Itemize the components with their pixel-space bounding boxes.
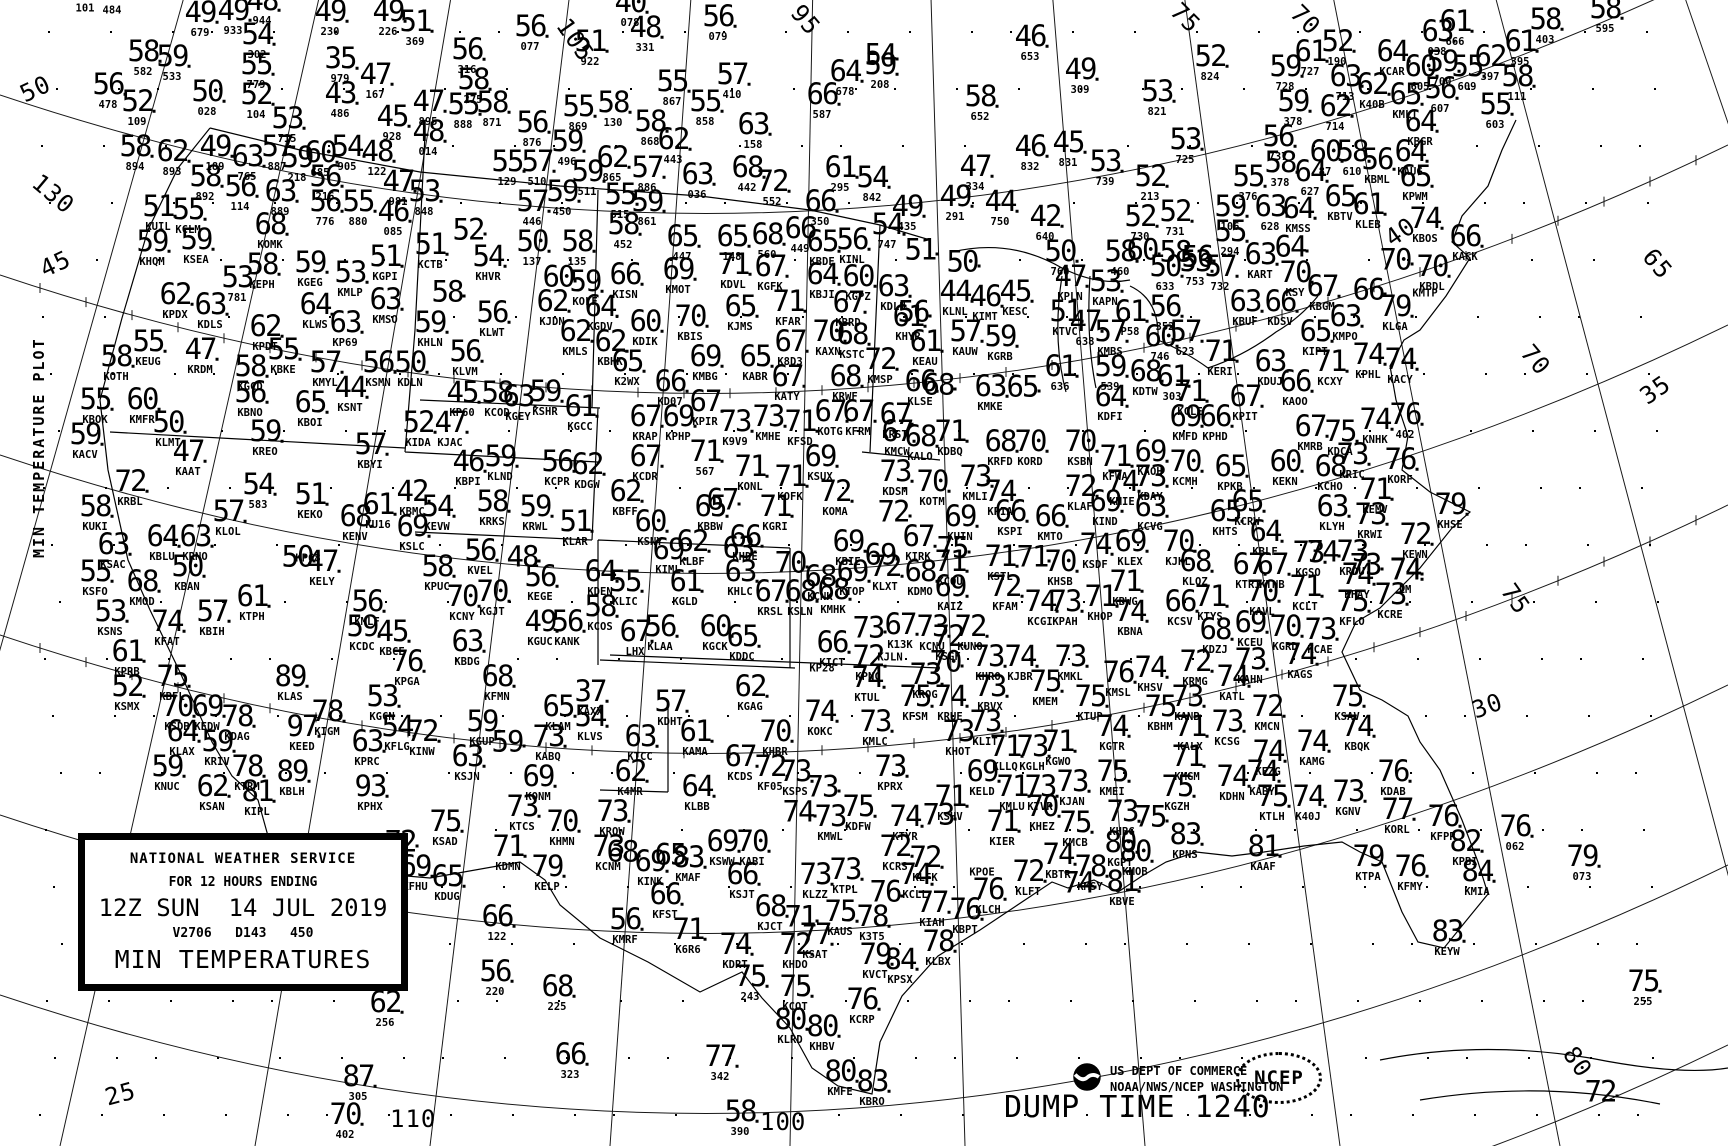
station-dot-icon <box>1323 805 1326 808</box>
graticule-dot <box>512 1114 514 1116</box>
graticule-dot <box>1426 886 1428 888</box>
station-temp: 73 <box>1333 777 1364 806</box>
station-temp: 81 <box>1107 867 1138 896</box>
station-id: KPIT <box>1230 412 1261 423</box>
station-temp: 70 <box>775 549 806 578</box>
station-dot-icon <box>787 190 790 193</box>
station-plot: 59KSHR <box>530 377 561 418</box>
station-dot-icon <box>400 1011 403 1014</box>
station-id: 078 <box>615 18 646 29</box>
station-dot-icon <box>1192 795 1195 798</box>
graticule-dot <box>104 316 106 318</box>
station-dot-icon <box>685 390 688 393</box>
station-dot-icon <box>1310 390 1313 393</box>
station-plot: 56KBNO <box>235 378 266 419</box>
station-temp: 79 <box>532 852 563 881</box>
graticule-dot <box>1181 88 1183 90</box>
commerce-dept-line: US DEPT OF COMMERCE <box>1110 1064 1247 1078</box>
station-temp: 60 <box>1270 447 1301 476</box>
station-id: KPNS <box>1170 850 1201 861</box>
station-id: KBTV <box>1325 212 1356 223</box>
station-dot-icon <box>227 620 230 623</box>
station-temp: 58 <box>1265 148 1296 177</box>
station-plot: 63KMSO <box>370 285 401 326</box>
station-dot-icon <box>515 465 518 468</box>
station-dot-icon <box>555 585 558 588</box>
graticule-dot <box>1648 373 1650 375</box>
station-id: KEUG <box>133 357 164 368</box>
station-temp: 72 <box>757 167 788 196</box>
station-dot-icon <box>547 250 550 253</box>
station-dot-icon <box>563 745 566 748</box>
station-dot-icon <box>385 453 388 456</box>
station-temp: 70 <box>1065 427 1096 456</box>
station-temp: 63 <box>1255 192 1286 221</box>
station-plot: 62KPDX <box>160 280 191 321</box>
station-plot: 73KPAH <box>1050 587 1081 628</box>
station-dot-icon <box>1447 275 1450 278</box>
station-plot: 51KCTB <box>415 230 446 271</box>
station-dot-icon <box>887 925 890 928</box>
station-dot-icon <box>560 400 563 403</box>
station-plot: 71 <box>1017 543 1048 572</box>
station-plot: 79KHSE <box>1435 490 1466 531</box>
station-id: 256 <box>370 1018 401 1029</box>
station-plot: 63KGEY <box>503 382 534 423</box>
station-dot-icon <box>1060 690 1063 693</box>
station-temp: 66 <box>995 497 1026 526</box>
graticule-dot <box>1372 943 1374 945</box>
graticule-dot <box>1656 430 1658 432</box>
graticule-dot <box>673 772 675 774</box>
station-dot-icon <box>125 620 128 623</box>
station-dot-icon <box>910 480 913 483</box>
graticule-dot <box>228 316 230 318</box>
station-id: KBQK <box>1342 742 1373 753</box>
graticule-dot <box>157 88 159 90</box>
station-temp: 59 <box>152 752 183 781</box>
graticule-dot <box>1415 316 1417 318</box>
graticule-dot <box>1472 772 1474 774</box>
station-temp: 69 <box>523 762 554 791</box>
station-plot: 65KDUG <box>432 862 463 903</box>
station-id: KGCC <box>565 422 596 433</box>
station-temp: 59 <box>520 492 551 521</box>
station-id: KBOI <box>295 418 326 429</box>
station-id: KSPI <box>995 527 1026 538</box>
station-id: KELD <box>967 787 998 798</box>
station-dot-icon <box>187 65 190 68</box>
station-temp: 71 <box>775 462 806 491</box>
station-id: KANK <box>552 637 583 648</box>
station-dot-icon <box>1075 375 1078 378</box>
station-dot-icon <box>110 515 113 518</box>
station-id: 450 <box>547 207 578 218</box>
station-temp: 79 <box>1435 490 1466 519</box>
graticule-dot <box>499 202 501 204</box>
graticule-dot <box>1538 145 1540 147</box>
station-plot: 61KAMA <box>680 717 711 758</box>
station-id: KCDS <box>725 772 756 783</box>
station-id: KOTG <box>815 427 846 438</box>
station-dot-icon <box>1420 423 1423 426</box>
graticule-dot <box>1535 943 1537 945</box>
station-temp: 76 <box>392 647 423 676</box>
station-dot-icon <box>110 580 113 583</box>
station-id: 390 <box>725 1127 756 1138</box>
station-dot-icon <box>768 133 771 136</box>
station-dot-icon <box>1165 515 1168 518</box>
graticule-dot <box>153 715 155 717</box>
station-plot: 70KSBN <box>1065 427 1096 468</box>
station-id: 871 <box>477 118 508 129</box>
station-id: KDSV <box>1265 317 1296 328</box>
station-id: KNUC <box>152 782 183 793</box>
station-plot: 72 <box>1585 1078 1616 1107</box>
station-temp: 73 <box>1355 500 1386 529</box>
station-temp: 55 <box>492 147 523 176</box>
station-dot-icon <box>1200 340 1203 343</box>
station-plot: 73KTPL <box>830 855 861 896</box>
station-temp: 56 <box>703 2 734 31</box>
station-plot: 83KPNS <box>1170 820 1201 861</box>
station-dot-icon <box>1492 880 1495 883</box>
station-temp: 40 <box>615 0 646 17</box>
station-dot-icon <box>790 740 793 743</box>
graticule-dot <box>385 601 387 603</box>
station-temp: 67 <box>843 397 874 426</box>
station-plot: 54747 <box>872 210 903 251</box>
station-dot-icon <box>1110 553 1113 556</box>
station-plot: 73KCNM <box>593 832 624 873</box>
station-plot: 67KPIR <box>690 387 721 428</box>
station-dot-icon <box>980 340 983 343</box>
station-plot: 57446 <box>517 187 548 228</box>
graticule-dot <box>1310 943 1312 945</box>
station-temp: 45 <box>1000 277 1031 306</box>
station-dot-icon <box>803 310 806 313</box>
graticule-dot <box>1355 658 1357 660</box>
graticule-dot <box>837 943 839 945</box>
station-temp: 72 <box>780 930 811 959</box>
station-id: KCOS <box>585 622 616 633</box>
station-plot: 73KMHE <box>753 402 784 443</box>
station-plot: 63628 <box>1255 192 1286 233</box>
station-plot: 59KSEA <box>181 225 212 266</box>
station-plot: 65KDDC <box>727 622 758 663</box>
station-dot-icon <box>1202 765 1205 768</box>
station-dot-icon <box>1120 290 1123 293</box>
station-temp: 50 <box>1150 252 1181 281</box>
station-plot: 61KGLD <box>670 567 701 608</box>
station-plot: 58KOTH <box>101 342 132 383</box>
station-id: KLYH <box>1317 522 1348 533</box>
station-plot: 74KFAT <box>152 607 183 648</box>
station-plot: 70402 <box>330 1100 361 1141</box>
station-temp: 71 <box>1172 742 1203 771</box>
station-temp: 66 <box>1450 222 1481 251</box>
station-id: KBRO <box>857 1097 888 1108</box>
graticule-dot <box>1584 31 1586 33</box>
station-temp: 56 <box>525 562 556 591</box>
station-dot-icon <box>638 233 641 236</box>
graticule-dot <box>685 202 687 204</box>
station-plot: 50137 <box>517 227 548 268</box>
station-temp: 74 <box>1080 530 1111 559</box>
station-id: KPHL <box>1353 370 1384 381</box>
graticule-dot <box>386 772 388 774</box>
graticule-dot <box>630 88 632 90</box>
station-plot: 51369 <box>400 7 431 48</box>
station-plot: 79KELP <box>532 852 563 893</box>
station-id: 225 <box>542 1002 573 1013</box>
graticule-dot <box>1474 1114 1476 1116</box>
station-plot: 70KCMH <box>1170 447 1201 488</box>
station-dot-icon <box>1277 600 1280 603</box>
station-dot-icon <box>265 401 268 404</box>
station-temp: 51 <box>415 230 446 259</box>
graticule-dot <box>1427 1057 1429 1059</box>
station-plot: 68KOMK <box>255 210 286 251</box>
graticule-dot <box>1144 430 1146 432</box>
station-plot: 74KHSV <box>1135 653 1166 694</box>
station-dot-icon <box>1145 620 1148 623</box>
station-temp: 67 <box>755 577 786 606</box>
station-id: KENV <box>340 532 371 543</box>
station-id: KRSL <box>755 607 786 618</box>
station-temp: 72 <box>933 622 964 651</box>
station-id: KSEA <box>181 255 212 266</box>
station-temp: 50 <box>153 408 184 437</box>
station-plot: 56077 <box>515 12 546 53</box>
graticule-dot <box>626 715 628 717</box>
station-temp: 71 <box>1290 572 1321 601</box>
station-temp: 59 <box>492 728 523 757</box>
station-plot: 47KAAT <box>173 437 204 478</box>
graticule-dot <box>1179 1057 1181 1059</box>
grid-label: 110 <box>390 1105 436 1133</box>
station-id: KMBG <box>690 372 721 383</box>
graticule-dot <box>1023 943 1025 945</box>
station-dot-icon <box>131 365 134 368</box>
station-dot-icon <box>272 800 275 803</box>
station-plot: 52109 <box>122 87 153 128</box>
station-dot-icon <box>1100 330 1103 333</box>
graticule-dot <box>1072 31 1074 33</box>
station-id: 776 <box>310 217 341 228</box>
station-dot-icon <box>522 170 525 173</box>
graticule-dot <box>838 1114 840 1116</box>
station-id: KABR <box>740 372 771 383</box>
station-dot-icon <box>873 420 876 423</box>
graticule-dot <box>686 373 688 375</box>
station-temp: 89 <box>277 757 308 786</box>
graticule-dot <box>1311 1114 1313 1116</box>
graticule-dot <box>907 1000 909 1002</box>
station-id: 633 <box>1150 282 1181 293</box>
station-temp: 67 <box>885 610 916 639</box>
graticule-dot <box>956 88 958 90</box>
station-plot: 73KPRX <box>875 752 906 793</box>
station-plot: 63KBDG <box>452 627 483 668</box>
station-temp: 64 <box>1095 382 1126 411</box>
station-temp: 71 <box>1175 712 1206 741</box>
station-temp: 55 <box>1233 162 1264 191</box>
station-temp: 67 <box>630 442 661 471</box>
graticule-dot <box>438 373 440 375</box>
station-temp: 75 <box>1097 757 1128 786</box>
graticule-dot <box>338 544 340 546</box>
station-plot: 48944 <box>247 0 278 26</box>
station-temp: 65 <box>1215 452 1246 481</box>
graticule-dot <box>504 1057 506 1059</box>
station-id: KDDC <box>727 652 758 663</box>
station-plot: 56KLVM <box>450 337 481 378</box>
station-plot: 49230 <box>315 0 346 37</box>
graticule-dot <box>794 259 796 261</box>
station-temp: 63 <box>180 522 211 551</box>
station-temp: 68 <box>837 320 868 349</box>
station-temp: 74 <box>783 798 814 827</box>
graticule-dot <box>1248 943 1250 945</box>
station-temp: 51 <box>905 236 936 265</box>
station-dot-icon <box>507 111 510 114</box>
station-id: KDFI <box>1095 412 1126 423</box>
graticule-dot <box>905 658 907 660</box>
graticule-dot <box>1238 544 1240 546</box>
station-temp: 77 <box>1382 795 1413 824</box>
station-dot-icon <box>873 815 876 818</box>
graticule-dot <box>453 316 455 318</box>
station-dot-icon <box>295 200 298 203</box>
station-id: KFSM <box>900 712 931 723</box>
station-temp: 48 <box>413 117 444 146</box>
station-id: KGEY <box>503 412 534 423</box>
station-id: KRDM <box>185 365 216 376</box>
station-temp: 55 <box>563 92 594 121</box>
station-temp: 51 <box>295 480 326 509</box>
station-plot: 59KRIV <box>202 727 233 768</box>
station-plot: 55KBKE <box>268 335 299 376</box>
station-dot-icon <box>645 780 648 783</box>
station-temp: 72 <box>1013 857 1044 886</box>
station-plot: 70 <box>775 549 806 578</box>
graticule-dot <box>101 1114 103 1116</box>
station-temp: 69 <box>837 557 868 586</box>
station-dot-icon <box>1242 730 1245 733</box>
station-plot: 76KMSL <box>1103 658 1134 699</box>
station-plot: 64KDFI <box>1095 382 1126 423</box>
graticule-dot <box>440 715 442 717</box>
station-dot-icon <box>960 664 963 667</box>
station-dot-icon <box>980 918 983 921</box>
graticule-dot <box>279 1057 281 1059</box>
station-temp: 47 <box>185 335 216 364</box>
station-temp: 74 <box>1410 204 1441 233</box>
station-dot-icon <box>680 903 683 906</box>
station-plot: 71K6R6 <box>673 915 704 956</box>
station-plot: 61KEAU <box>910 327 941 368</box>
station-dot-icon <box>1020 595 1023 598</box>
station-dot-icon <box>837 103 840 106</box>
station-id: KLOL <box>213 527 244 538</box>
graticule-dot <box>172 31 174 33</box>
graticule-dot <box>1134 31 1136 33</box>
station-dot-icon <box>767 850 770 853</box>
station-dot-icon <box>835 465 838 468</box>
graticule-dot <box>1592 88 1594 90</box>
station-temp: 50 <box>947 248 978 277</box>
station-dot-icon <box>970 300 973 303</box>
station-plot: 74KAMG <box>1297 727 1328 768</box>
station-temp: 56 <box>542 447 573 476</box>
station-plot: 70KBIS <box>675 302 706 343</box>
graticule-dot <box>502 715 504 717</box>
station-dot-icon <box>675 635 678 638</box>
station-plot: 75KMEM <box>1030 667 1061 708</box>
station-id: KMLP <box>335 288 366 299</box>
graticule-dot <box>961 943 963 945</box>
station-id: KCSG <box>1212 737 1243 748</box>
graticule-dot <box>1240 886 1242 888</box>
station-temp: 74 <box>1293 782 1324 811</box>
graticule-dot <box>1186 943 1188 945</box>
station-temp: 75 <box>780 972 811 1001</box>
station-id: KBPT <box>950 925 981 936</box>
station-temp: 63 <box>1330 302 1361 331</box>
station-dot-icon <box>373 1085 376 1088</box>
station-dot-icon <box>890 730 893 733</box>
station-temp: 65 <box>717 222 748 251</box>
station-dot-icon <box>1440 227 1443 230</box>
station-plot: 57732 <box>1205 252 1236 293</box>
graticule-dot <box>1579 487 1581 489</box>
station-id: 832 <box>1015 162 1046 173</box>
station-temp: 60 <box>1145 322 1176 351</box>
station-id: KLND <box>485 472 516 483</box>
graticule-dot <box>1016 1057 1018 1059</box>
station-plot: 55129 <box>492 147 523 188</box>
station-dot-icon <box>1172 100 1175 103</box>
station-plot: 68560 <box>752 220 783 261</box>
station-dot-icon <box>703 938 706 941</box>
station-dot-icon <box>1000 305 1003 308</box>
station-dot-icon <box>305 685 308 688</box>
station-id: 130 <box>598 118 629 129</box>
station-id: KCRP <box>847 1015 878 1026</box>
station-temp: 63 <box>625 722 656 751</box>
station-temp: 58 <box>477 88 508 117</box>
station-temp: 71 <box>785 407 816 436</box>
station-id: 552 <box>757 197 788 208</box>
station-plot: 73KTCS <box>507 792 538 833</box>
station-plot: 49679 <box>185 0 216 38</box>
graticule-dot <box>1412 1114 1414 1116</box>
station-dot-icon <box>307 780 310 783</box>
station-dot-icon <box>887 186 890 189</box>
graticule-dot <box>1639 145 1641 147</box>
station-temp: 74 <box>1217 762 1248 791</box>
graticule-dot <box>1419 1000 1421 1002</box>
graticule-dot <box>781 658 783 660</box>
station-dot-icon <box>1535 50 1538 53</box>
station-plot: 79KTPA <box>1353 842 1384 883</box>
station-plot: 84KMIA <box>1462 857 1493 898</box>
station-temp: 74 <box>1353 340 1384 369</box>
station-id: KPAH <box>1050 617 1081 628</box>
station-plot: 61KLEB <box>1353 190 1384 231</box>
station-plot: 67KCDS <box>725 742 756 783</box>
